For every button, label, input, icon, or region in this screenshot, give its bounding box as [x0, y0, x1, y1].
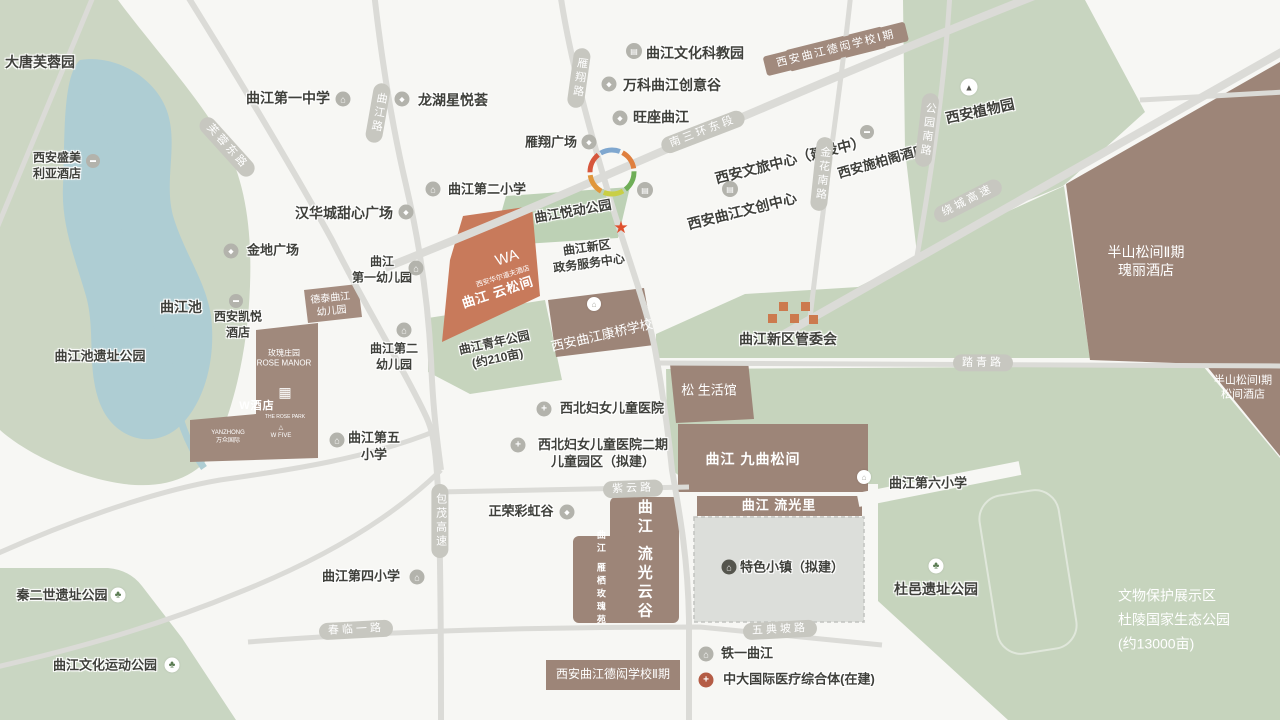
banshan-phase2-label-line-0: 半山松间Ⅱ期	[1108, 243, 1185, 261]
no1-kindergarten-icon: ⌂	[409, 261, 424, 276]
tese-town-label-line-0: 特色小镇（拟建）	[740, 560, 844, 577]
banshan-phase1-label-line-1: 松间酒店	[1214, 388, 1272, 402]
culture-science-park-label-line-0: 曲江文化科教园	[646, 44, 744, 62]
women-children-hospital2-label-line-1: 儿童园区（拟建）	[538, 454, 668, 471]
culture-sports-park-label-line-0: 曲江文化运动公园	[53, 658, 157, 675]
service-center-star-icon: ★	[612, 219, 630, 237]
zhongda-medical-label-line-0: 中大国际医疗综合体(在建)	[723, 672, 875, 689]
rose-park-qr-logo-line-0: ▦	[278, 383, 291, 401]
qinershi-ruins-park-label-line-0: 秦二世遗址公园	[16, 588, 107, 605]
yanqi-rose-garden-label: 曲江 雁栖玫瑰苑	[594, 530, 606, 628]
rose-manor-label: 玫瑰庄园ROSE MANOR	[257, 349, 312, 370]
jindi-plaza-label-line-0: 金地广场	[247, 243, 299, 260]
yanxiang-plaza-mall-icon: ◆	[582, 135, 597, 150]
longhu-xingyuehui-label-line-0: 龙湖星悦荟	[418, 91, 488, 109]
wangzuo-qujiang-label-line-0: 旺座曲江	[633, 108, 689, 126]
tieyi-qujiang-label-line-0: 铁一曲江	[721, 646, 773, 663]
yanxiang-plaza-label-line-0: 雁翔广场	[525, 135, 577, 152]
no2-primary-school-label-line-0: 曲江第二小学	[448, 182, 526, 199]
wangzuo-mall-icon: ◆	[613, 111, 628, 126]
botanical-tower-icon: ▲	[961, 79, 978, 96]
dehong-school-phase2-label: 西安曲江德闳学校Ⅱ期	[556, 667, 670, 683]
no2-primary-school-icon: ⌂	[426, 182, 441, 197]
shengmeiliya-hotel-label-line-1: 利亚酒店	[33, 166, 81, 182]
hyatt-hotel-icon: ▬	[229, 294, 243, 308]
science-park-building-icon: ▤	[626, 43, 642, 59]
qinershi-tree-icon: ♣	[111, 588, 126, 603]
qujiang-pool-ruins-park-label: 曲江池遗址公园	[54, 349, 145, 366]
zhengrong-rainbow-label-line-0: 正荣彩虹谷	[488, 504, 553, 521]
shengmeiliya-hotel-icon: ▬	[86, 154, 100, 168]
hanhuacheng-plaza-label-line-0: 汉华城甜心广场	[295, 204, 393, 222]
jindi-mall-icon: ◆	[224, 244, 239, 259]
hospital-cross-icon: +	[537, 402, 552, 417]
yanzhong-label: YANZHONG万众国际	[211, 430, 245, 446]
wenchuang-building-icon: ▤	[722, 181, 738, 197]
hanhuacheng-plaza-label: 汉华城甜心广场	[295, 204, 393, 222]
management-committee-label-line-0: 曲江新区管委会	[739, 330, 837, 348]
no2-primary-school-label: 曲江第二小学	[448, 182, 526, 199]
tieyi-school-icon: ⌂	[699, 647, 714, 662]
duling-eco-park-label: 文物保护展示区杜陵国家生态公园(约13000亩)	[1118, 584, 1230, 655]
duling-eco-park-label-line-1: 杜陵国家生态公园	[1118, 608, 1230, 632]
no6-primary-school-icon: ⌂	[857, 470, 871, 484]
banshan-phase2-label: 半山松间Ⅱ期瑰丽酒店	[1108, 243, 1185, 279]
management-committee-label: 曲江新区管委会	[739, 330, 837, 348]
wangzuo-qujiang-label: 旺座曲江	[633, 108, 689, 126]
qujiang-pool-ruins-park-label-line-0: 曲江池遗址公园	[54, 349, 145, 366]
banshan-phase2-label-line-1: 瑰丽酒店	[1108, 261, 1185, 279]
w-hotel-label-line-0: W酒店	[239, 399, 274, 413]
tieyi-qujiang-label: 铁一曲江	[721, 646, 773, 663]
rose-park-qr-logo: ▦	[278, 383, 291, 401]
no2-kindergarten-icon: ⌂	[397, 323, 412, 338]
zhengrong-mall-icon: ◆	[560, 505, 575, 520]
no4-primary-school-label: 曲江第四小学	[322, 569, 400, 586]
shengmeiliya-hotel-label: 西安盛美利亚酒店	[33, 150, 81, 181]
no1-middle-school-icon: ⌂	[336, 92, 351, 107]
banshan-phase1-label-line-0: 半山松间Ⅰ期	[1214, 374, 1272, 388]
zhongda-medical-cross-icon: +	[699, 673, 714, 688]
rose-park-label-line-0: THE ROSE PARK	[265, 414, 305, 421]
women-children-hospital2-label: 西北妇女儿童医院二期儿童园区（拟建）	[538, 437, 668, 471]
w-hotel-label: W酒店	[239, 399, 274, 413]
hyatt-hotel-label: 西安凯悦酒店	[214, 309, 262, 340]
qujiang-road	[374, 0, 441, 470]
song-life-hall-label-line-0: 松 生活馆	[681, 383, 737, 400]
qujiang-no1-middle-school-label-line-0: 曲江第一中学	[246, 89, 330, 107]
detai-kindergarten-label: 德泰曲江幼儿园	[310, 290, 352, 320]
duyi-ruins-park-label: 杜邑遗址公园	[894, 580, 978, 598]
rose-park-label: THE ROSE PARK	[265, 414, 305, 421]
no2-kindergarten-label-line-0: 曲江第二	[370, 341, 418, 357]
vanke-creative-valley-label-line-0: 万科曲江创意谷	[623, 76, 721, 94]
qujiang-pool-label: 曲江池	[160, 298, 202, 316]
no4-primary-school-label-line-0: 曲江第四小学	[322, 569, 400, 586]
qujiang-no1-middle-school-label: 曲江第一中学	[246, 89, 330, 107]
no1-kindergarten-label-line-1: 第一幼儿园	[352, 270, 412, 286]
vanke-creative-valley-label: 万科曲江创意谷	[623, 76, 721, 94]
jindi-plaza-label: 金地广场	[247, 243, 299, 260]
zhongda-medical-label: 中大国际医疗综合体(在建)	[723, 672, 875, 689]
duyi-tree-icon: ♣	[929, 559, 944, 574]
vanke-mall-icon: ◆	[602, 77, 617, 92]
culture-sports-park-label: 曲江文化运动公园	[53, 658, 157, 675]
women-children-hospital-label-line-0: 西北妇女儿童医院	[560, 401, 664, 418]
w-five-label-line-0: △	[271, 425, 292, 433]
shengmeiliya-hotel-label-line-0: 西安盛美	[33, 150, 81, 166]
liuguangli-label: 曲江 流光里	[742, 498, 817, 515]
no1-kindergarten-label: 曲江第一幼儿园	[352, 254, 412, 285]
longhu-xingyuehui-label: 龙湖星悦荟	[418, 91, 488, 109]
duling-eco-park-label-line-0: 文物保护展示区	[1118, 584, 1230, 608]
hyatt-hotel-label-line-0: 西安凯悦	[214, 309, 262, 325]
zhengrong-rainbow-label: 正荣彩虹谷	[488, 504, 553, 521]
no2-kindergarten-label-line-1: 幼儿园	[370, 357, 418, 373]
liuguang-yungu-label-line-0: 曲江 流光云谷	[634, 499, 654, 621]
steigenberger-hotel-icon: ▬	[860, 125, 874, 139]
jiuqu-songjian-label-line-0: 曲江 九曲松间	[706, 450, 801, 468]
ziyun-road-label: 紫云路	[603, 479, 664, 498]
jiuqu-songjian-label: 曲江 九曲松间	[706, 450, 801, 468]
no6-primary-school-label-line-0: 曲江第六小学	[889, 476, 967, 493]
hospital2-cross-icon: +	[511, 438, 526, 453]
yanzhong-label-line-1: 万众国际	[211, 438, 245, 446]
no1-kindergarten-label-line-0: 曲江	[352, 254, 412, 270]
sports-park-tree-icon: ♣	[165, 658, 180, 673]
qujiang-pool-label-line-0: 曲江池	[160, 298, 202, 316]
rose-manor-label-line-1: ROSE MANOR	[257, 359, 312, 369]
yanqi-rose-garden-label-line-0: 曲江 雁栖玫瑰苑	[594, 530, 606, 628]
liuguangli-label-line-0: 曲江 流光里	[742, 498, 817, 515]
rose-manor-label-line-0: 玫瑰庄园	[257, 349, 312, 359]
qinershi-ruins-park-label: 秦二世遗址公园	[16, 588, 107, 605]
women-children-hospital-label: 西北妇女儿童医院	[560, 401, 664, 418]
no6-primary-school-label: 曲江第六小学	[889, 476, 967, 493]
song-life-hall-label: 松 生活馆	[681, 383, 737, 400]
longhu-mall-icon: ◆	[395, 92, 410, 107]
tese-town-icon: ⌂	[722, 560, 737, 575]
no4-primary-school-icon: ⌂	[410, 570, 425, 585]
tang-paradise-label-line-0: 大唐芙蓉园	[5, 53, 75, 71]
women-children-hospital2-label-line-0: 西北妇女儿童医院二期	[538, 437, 668, 454]
no5-primary-school-icon: ⌂	[330, 433, 345, 448]
yanzhong-label-line-0: YANZHONG	[211, 430, 245, 438]
duling-eco-park-label-line-2: (约13000亩)	[1118, 632, 1230, 656]
liuguang-yungu-label: 曲江 流光云谷	[634, 499, 654, 621]
culture-science-park-label: 曲江文化科教园	[646, 44, 744, 62]
baomao-expressway-label: 包茂高速	[431, 484, 448, 558]
no5-primary-school-label-line-1: 小学	[348, 447, 400, 464]
tang-paradise-label: 大唐芙蓉园	[5, 53, 75, 71]
duyi-ruins-park-label-line-0: 杜邑遗址公园	[894, 580, 978, 598]
yanxiang-plaza-label: 雁翔广场	[525, 135, 577, 152]
dehong-school-phase2-label-line-0: 西安曲江德闳学校Ⅱ期	[556, 667, 670, 683]
hyatt-hotel-label-line-1: 酒店	[214, 325, 262, 341]
no5-primary-school-label: 曲江第五小学	[348, 430, 400, 464]
w-five-label-line-1: W FIVE	[271, 433, 292, 441]
no2-kindergarten-label: 曲江第二幼儿园	[370, 341, 418, 372]
kangqiao-school-icon: ⌂	[587, 297, 601, 311]
hanhuacheng-mall-icon: ◆	[399, 205, 414, 220]
taqing-road-label: 踏青路	[953, 354, 1013, 371]
qujiang-area-map: 大唐芙蓉园西安盛美利亚酒店曲江池曲江池遗址公园西安凯悦酒店金地广场曲江第一中学龙…	[0, 0, 1280, 720]
tese-town-label: 特色小镇（拟建）	[740, 560, 844, 577]
no5-primary-school-label-line-0: 曲江第五	[348, 430, 400, 447]
w-five-label: △W FIVE	[271, 425, 292, 441]
wenlv-building-icon: ▤	[637, 182, 653, 198]
banshan-phase1-label: 半山松间Ⅰ期松间酒店	[1214, 374, 1272, 403]
